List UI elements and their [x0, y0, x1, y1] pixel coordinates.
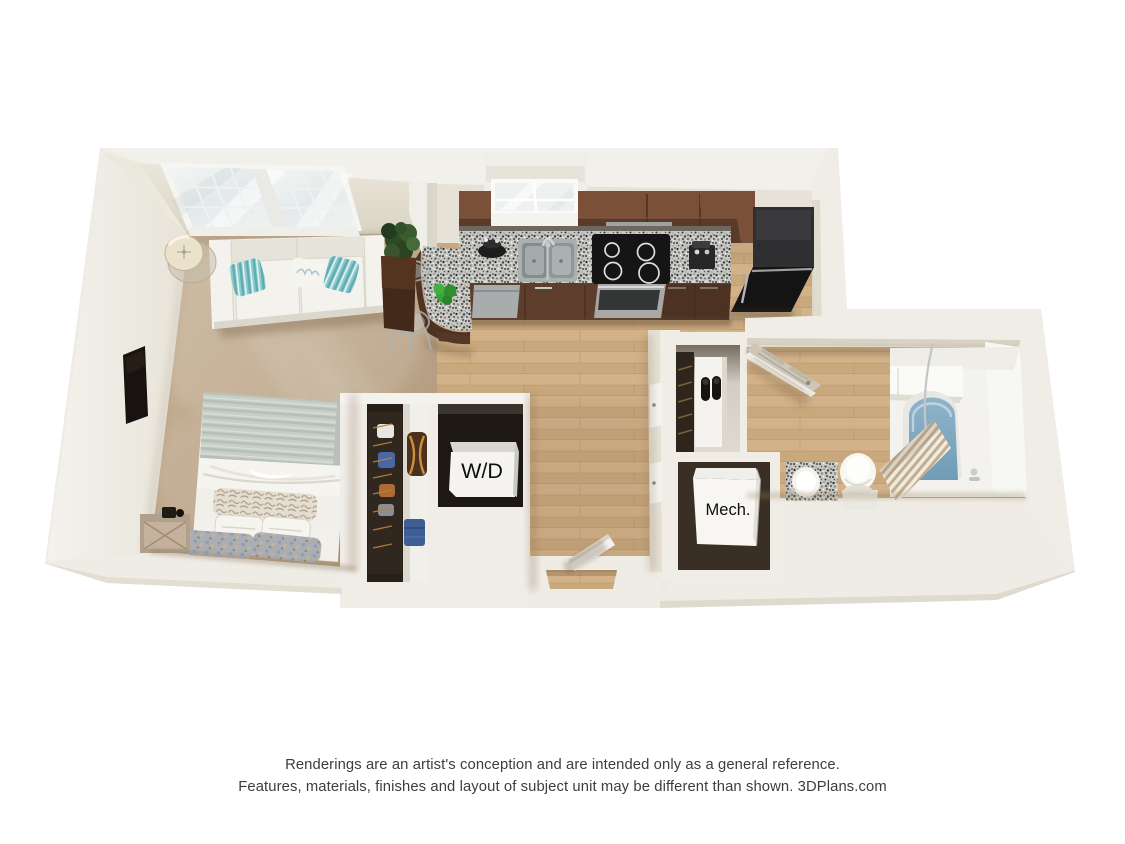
svg-text:W/D: W/D	[461, 459, 503, 483]
svg-text:Mech.: Mech.	[706, 501, 751, 519]
